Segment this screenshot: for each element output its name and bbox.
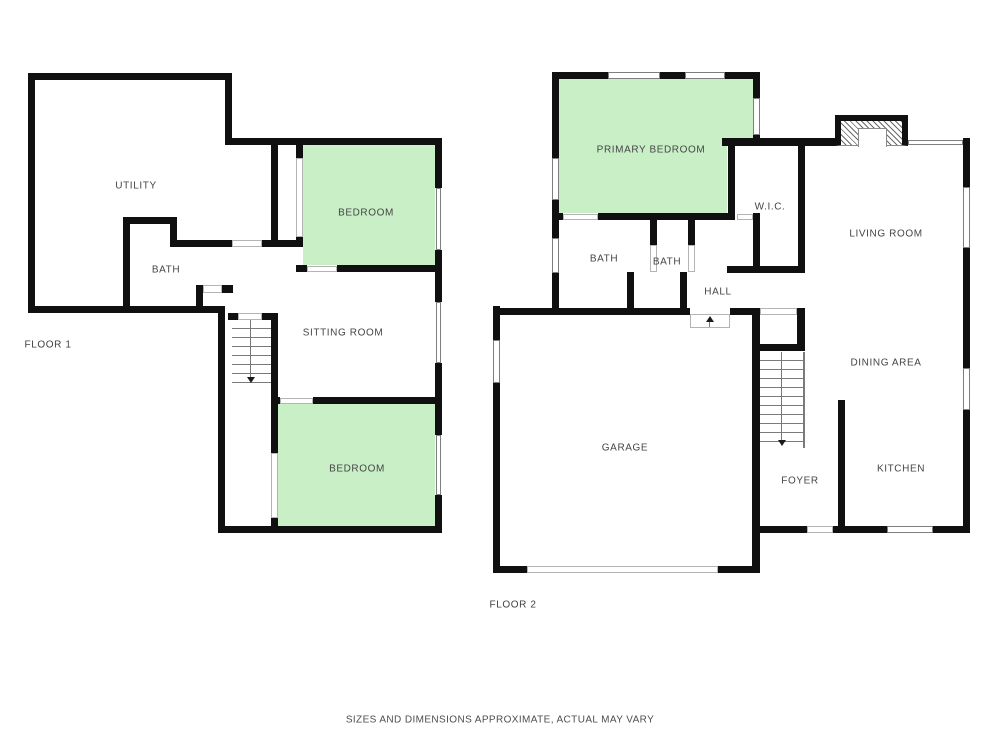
room-label-bath-right: BATH — [653, 257, 681, 268]
wall-segment — [296, 265, 307, 272]
room-label-living-room: LIVING ROOM — [849, 229, 922, 240]
wall-segment — [196, 285, 203, 313]
wall-segment — [627, 272, 634, 313]
wall-segment — [435, 363, 442, 397]
wall-segment — [271, 404, 278, 453]
window — [908, 140, 963, 145]
door-opening — [760, 308, 797, 315]
window — [493, 340, 500, 383]
floor-plan-canvas: UTILITY BATH BEDROOM SITTING ROOM BEDROO… — [0, 0, 1000, 750]
window — [608, 72, 660, 79]
wall-segment — [222, 285, 233, 293]
door-arrow-stem — [709, 322, 710, 327]
wall-segment — [493, 308, 690, 315]
bedroom-top-highlight — [303, 145, 435, 265]
door-opening — [307, 266, 337, 272]
fireplace — [835, 115, 908, 146]
wall-segment — [680, 272, 687, 308]
room-label-bedroom-top: BEDROOM — [338, 208, 394, 219]
wall-segment — [218, 306, 225, 533]
wall-segment — [650, 220, 657, 245]
wall-segment — [123, 217, 130, 313]
door-arrow-up-icon — [706, 316, 714, 322]
wall-segment — [218, 526, 442, 533]
room-label-primary-bedroom: PRIMARY BEDROOM — [597, 145, 706, 156]
door-opening — [271, 453, 278, 518]
wall-segment — [313, 397, 442, 404]
floor1-title: FLOOR 1 — [25, 340, 72, 351]
room-label-bedroom-bottom: BEDROOM — [329, 464, 385, 475]
wall-segment — [271, 145, 278, 247]
room-label-hall: HALL — [704, 287, 731, 298]
room-label-bath-f1: BATH — [152, 265, 180, 276]
room-label-garage: GARAGE — [602, 443, 648, 454]
window — [963, 368, 970, 410]
stair-edge-line — [803, 352, 805, 448]
window — [436, 435, 441, 495]
wall-segment — [688, 220, 695, 245]
wall-segment — [170, 217, 177, 245]
wall-segment — [271, 518, 278, 533]
stair-direction-line — [781, 352, 782, 440]
garage-door-opening — [527, 566, 718, 573]
wall-segment — [28, 73, 232, 80]
door-opening — [232, 240, 262, 247]
wall-segment — [722, 138, 838, 146]
wall-segment — [228, 313, 238, 320]
wall-segment — [225, 138, 442, 145]
fireplace-insert — [858, 128, 887, 147]
wall-segment — [435, 145, 442, 188]
door-opening — [238, 313, 262, 320]
window — [436, 188, 441, 250]
door-opening — [688, 245, 695, 272]
window — [963, 187, 970, 248]
room-label-kitchen: KITCHEN — [877, 464, 925, 475]
window — [436, 302, 441, 363]
window — [887, 526, 933, 533]
wall-segment — [435, 272, 442, 302]
room-label-foyer: FOYER — [781, 476, 818, 487]
wall-segment — [123, 217, 177, 224]
wall-segment — [838, 400, 845, 526]
wall-segment — [553, 213, 563, 220]
primary-bedroom-highlight-ext — [727, 79, 753, 138]
disclaimer-text: SIZES AND DIMENSIONS APPROXIMATE, ACTUAL… — [346, 715, 654, 726]
room-label-utility: UTILITY — [115, 181, 156, 192]
window — [552, 158, 559, 200]
wall-segment — [262, 240, 298, 247]
wall-segment — [170, 240, 232, 247]
room-label-wic: W.I.C. — [755, 202, 786, 213]
door-opening — [563, 214, 598, 220]
stair-arrow-down-icon — [778, 440, 786, 446]
wall-segment — [598, 213, 728, 220]
door-opening — [280, 398, 313, 404]
wall-segment — [296, 145, 303, 158]
room-label-dining-area: DINING AREA — [850, 358, 921, 369]
window — [552, 238, 559, 273]
door-opening — [203, 285, 222, 293]
staircase-floor1 — [232, 320, 271, 384]
window — [753, 98, 760, 135]
stair-arrow-down-icon — [247, 377, 255, 383]
wall-segment — [271, 397, 280, 404]
wall-segment — [727, 266, 805, 273]
door-opening — [737, 214, 753, 220]
closet-opening — [296, 158, 303, 237]
wall-segment — [296, 237, 303, 247]
wall-segment — [752, 344, 805, 351]
wall-segment — [337, 265, 442, 272]
entry-door-opening — [807, 526, 833, 533]
wall-segment — [753, 526, 970, 533]
wall-segment — [798, 142, 805, 273]
room-label-sitting-room: SITTING ROOM — [303, 328, 384, 339]
room-label-bath-left: BATH — [590, 254, 618, 265]
stair-direction-line — [250, 320, 251, 377]
wall-segment — [753, 213, 760, 273]
window — [685, 72, 725, 79]
wall-segment — [28, 73, 35, 313]
wall-segment — [225, 73, 232, 145]
wall-segment — [271, 313, 278, 404]
wall-segment — [728, 142, 735, 220]
floor2-title: FLOOR 2 — [490, 600, 537, 611]
